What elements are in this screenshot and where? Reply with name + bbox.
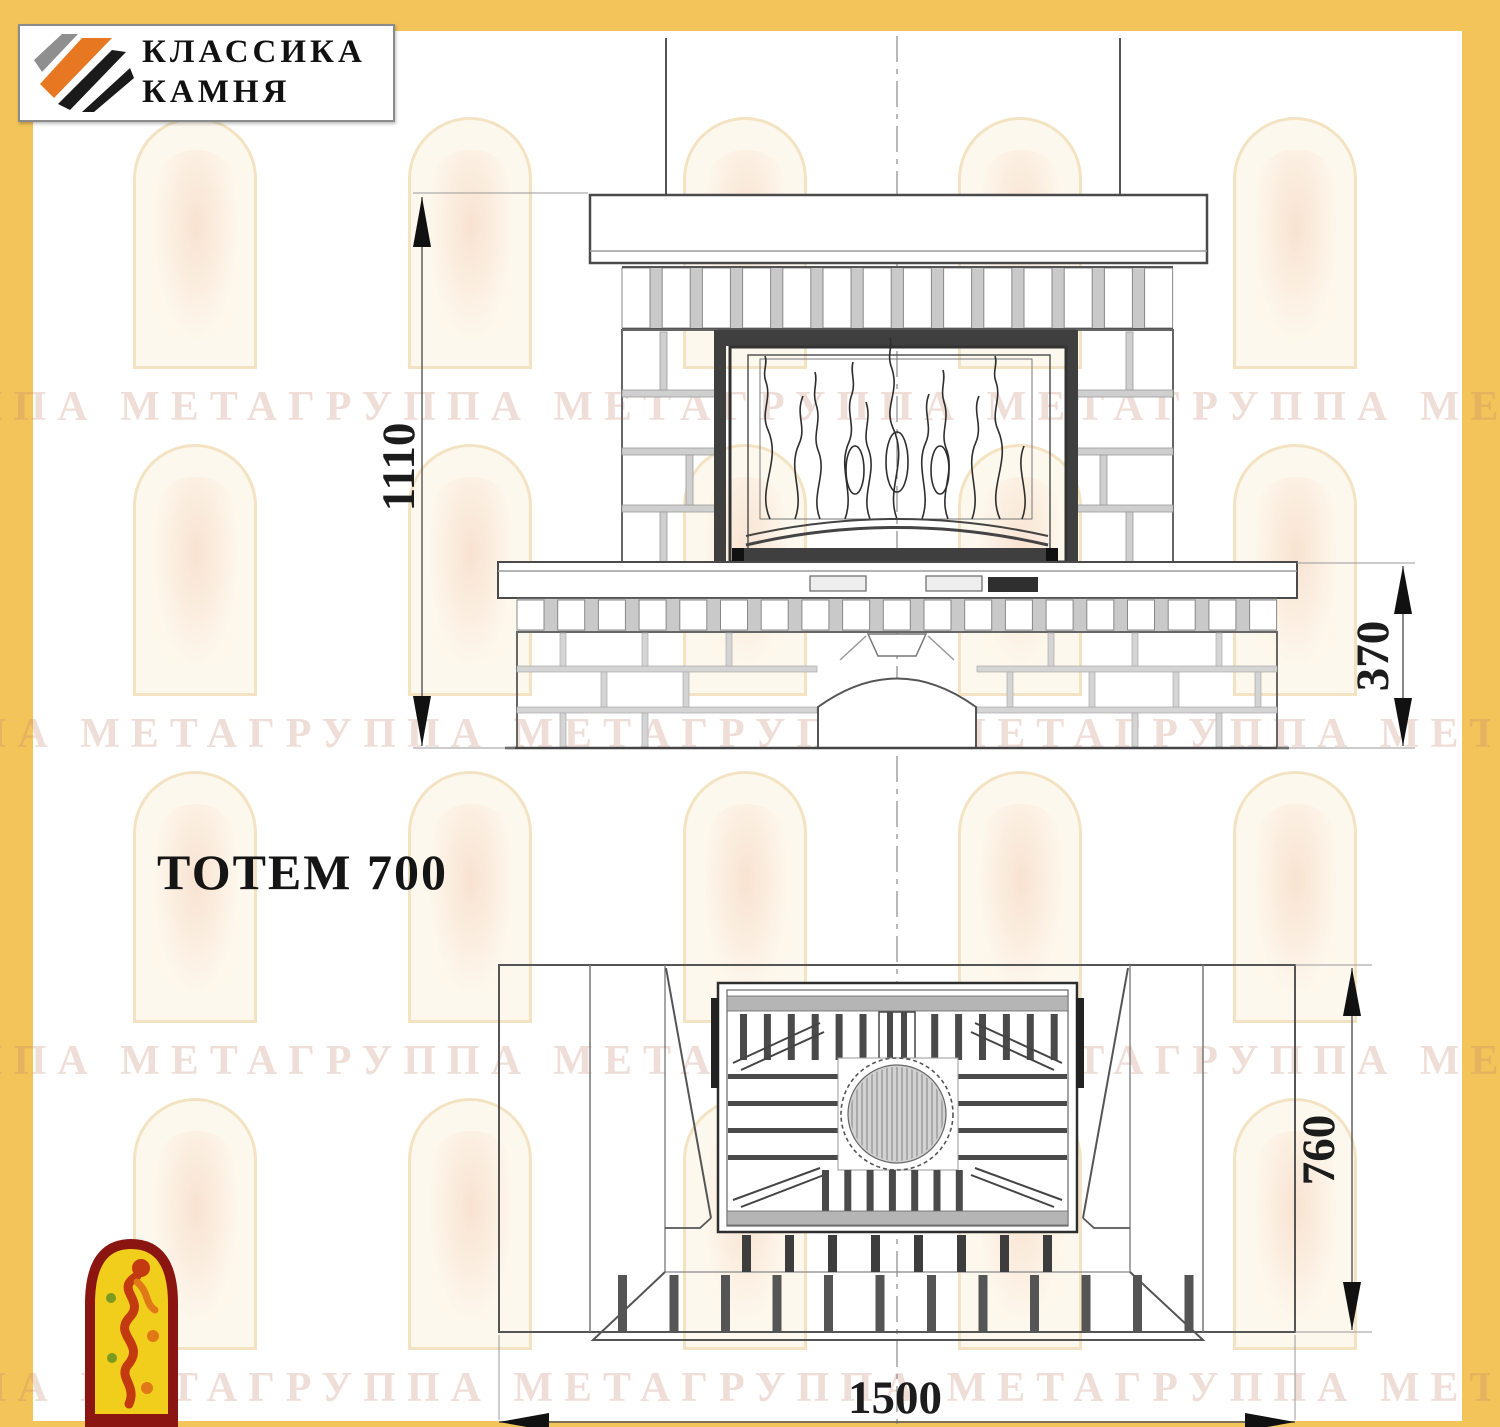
faded-arch-emblem-icon — [408, 444, 532, 696]
faded-arch-emblem-icon — [1233, 444, 1357, 696]
company-logo: КЛАССИКА КАМНЯ — [18, 24, 395, 122]
faded-arch-emblem-icon — [683, 117, 807, 369]
model-title: ТОТЕМ 700 — [157, 843, 448, 901]
dancing-flame-figure-icon — [85, 1238, 178, 1427]
faded-arch-emblem-icon — [683, 444, 807, 696]
logo-text-line1: КЛАССИКА — [142, 36, 366, 69]
faded-arch-emblem-icon — [958, 1098, 1082, 1350]
faded-arch-emblem-icon — [133, 444, 257, 696]
diagonal-stone-stripes-icon — [20, 26, 138, 116]
faded-arch-emblem-icon — [408, 1098, 532, 1350]
scanned-fireplace-drawing-page: { "page": { "background_color": "#ffffff… — [0, 0, 1500, 1427]
faded-arch-emblem-icon — [1233, 1098, 1357, 1350]
watermark-text-row: ППА МЕТАГРУППА МЕТАГРУППА МЕТАГРУППА МЕТ… — [0, 710, 1490, 758]
logo-text-line2: КАМНЯ — [142, 76, 290, 109]
watermark-text-row: ППА МЕТАГРУППА МЕТАГРУППА МЕТАГРУППА МЕТ… — [0, 1037, 1500, 1085]
faded-arch-emblem-icon — [1233, 771, 1357, 1023]
faded-arch-emblem-icon — [958, 771, 1082, 1023]
faded-arch-emblem-icon — [133, 117, 257, 369]
watermark-text-row: ППА МЕТАГРУППА МЕТАГРУППА МЕТАГРУППА МЕТ… — [0, 1364, 1490, 1412]
faded-arch-emblem-icon — [958, 117, 1082, 369]
faded-arch-emblem-icon — [683, 1098, 807, 1350]
faded-arch-emblem-icon — [408, 117, 532, 369]
faded-arch-emblem-icon — [958, 444, 1082, 696]
watermark-layer: ППА МЕТАГРУППА МЕТАГРУППА МЕТАГРУППА МЕТ… — [0, 0, 1500, 1427]
faded-arch-emblem-icon — [1233, 117, 1357, 369]
watermark-text-row: ППА МЕТАГРУППА МЕТАГРУППА МЕТАГРУППА МЕТ… — [0, 383, 1500, 431]
faded-arch-emblem-icon — [683, 771, 807, 1023]
